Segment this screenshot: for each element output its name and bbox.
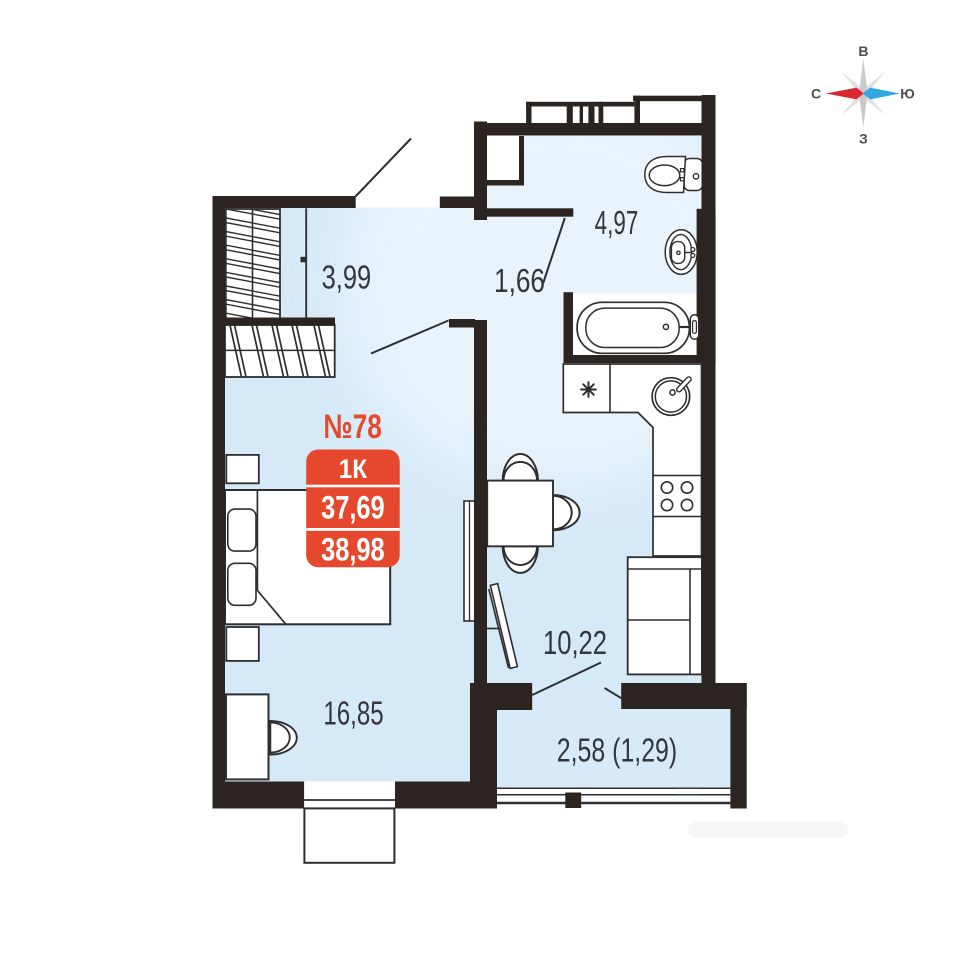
svg-text:16,85: 16,85 xyxy=(323,695,383,732)
svg-text:2,58 (1,29): 2,58 (1,29) xyxy=(557,731,677,768)
svg-text:№78: №78 xyxy=(323,408,381,446)
svg-text:37,69: 37,69 xyxy=(321,490,385,526)
svg-text:4,97: 4,97 xyxy=(595,204,639,241)
svg-text:3,99: 3,99 xyxy=(322,258,372,295)
svg-text:38,98: 38,98 xyxy=(321,532,385,568)
svg-text:С: С xyxy=(811,86,821,102)
svg-text:1К: 1К xyxy=(339,454,368,484)
svg-text:Ю: Ю xyxy=(900,86,914,102)
svg-text:10,22: 10,22 xyxy=(543,624,607,661)
svg-text:В: В xyxy=(858,43,868,59)
svg-text:З: З xyxy=(859,131,868,147)
svg-text:1,66: 1,66 xyxy=(494,262,545,299)
